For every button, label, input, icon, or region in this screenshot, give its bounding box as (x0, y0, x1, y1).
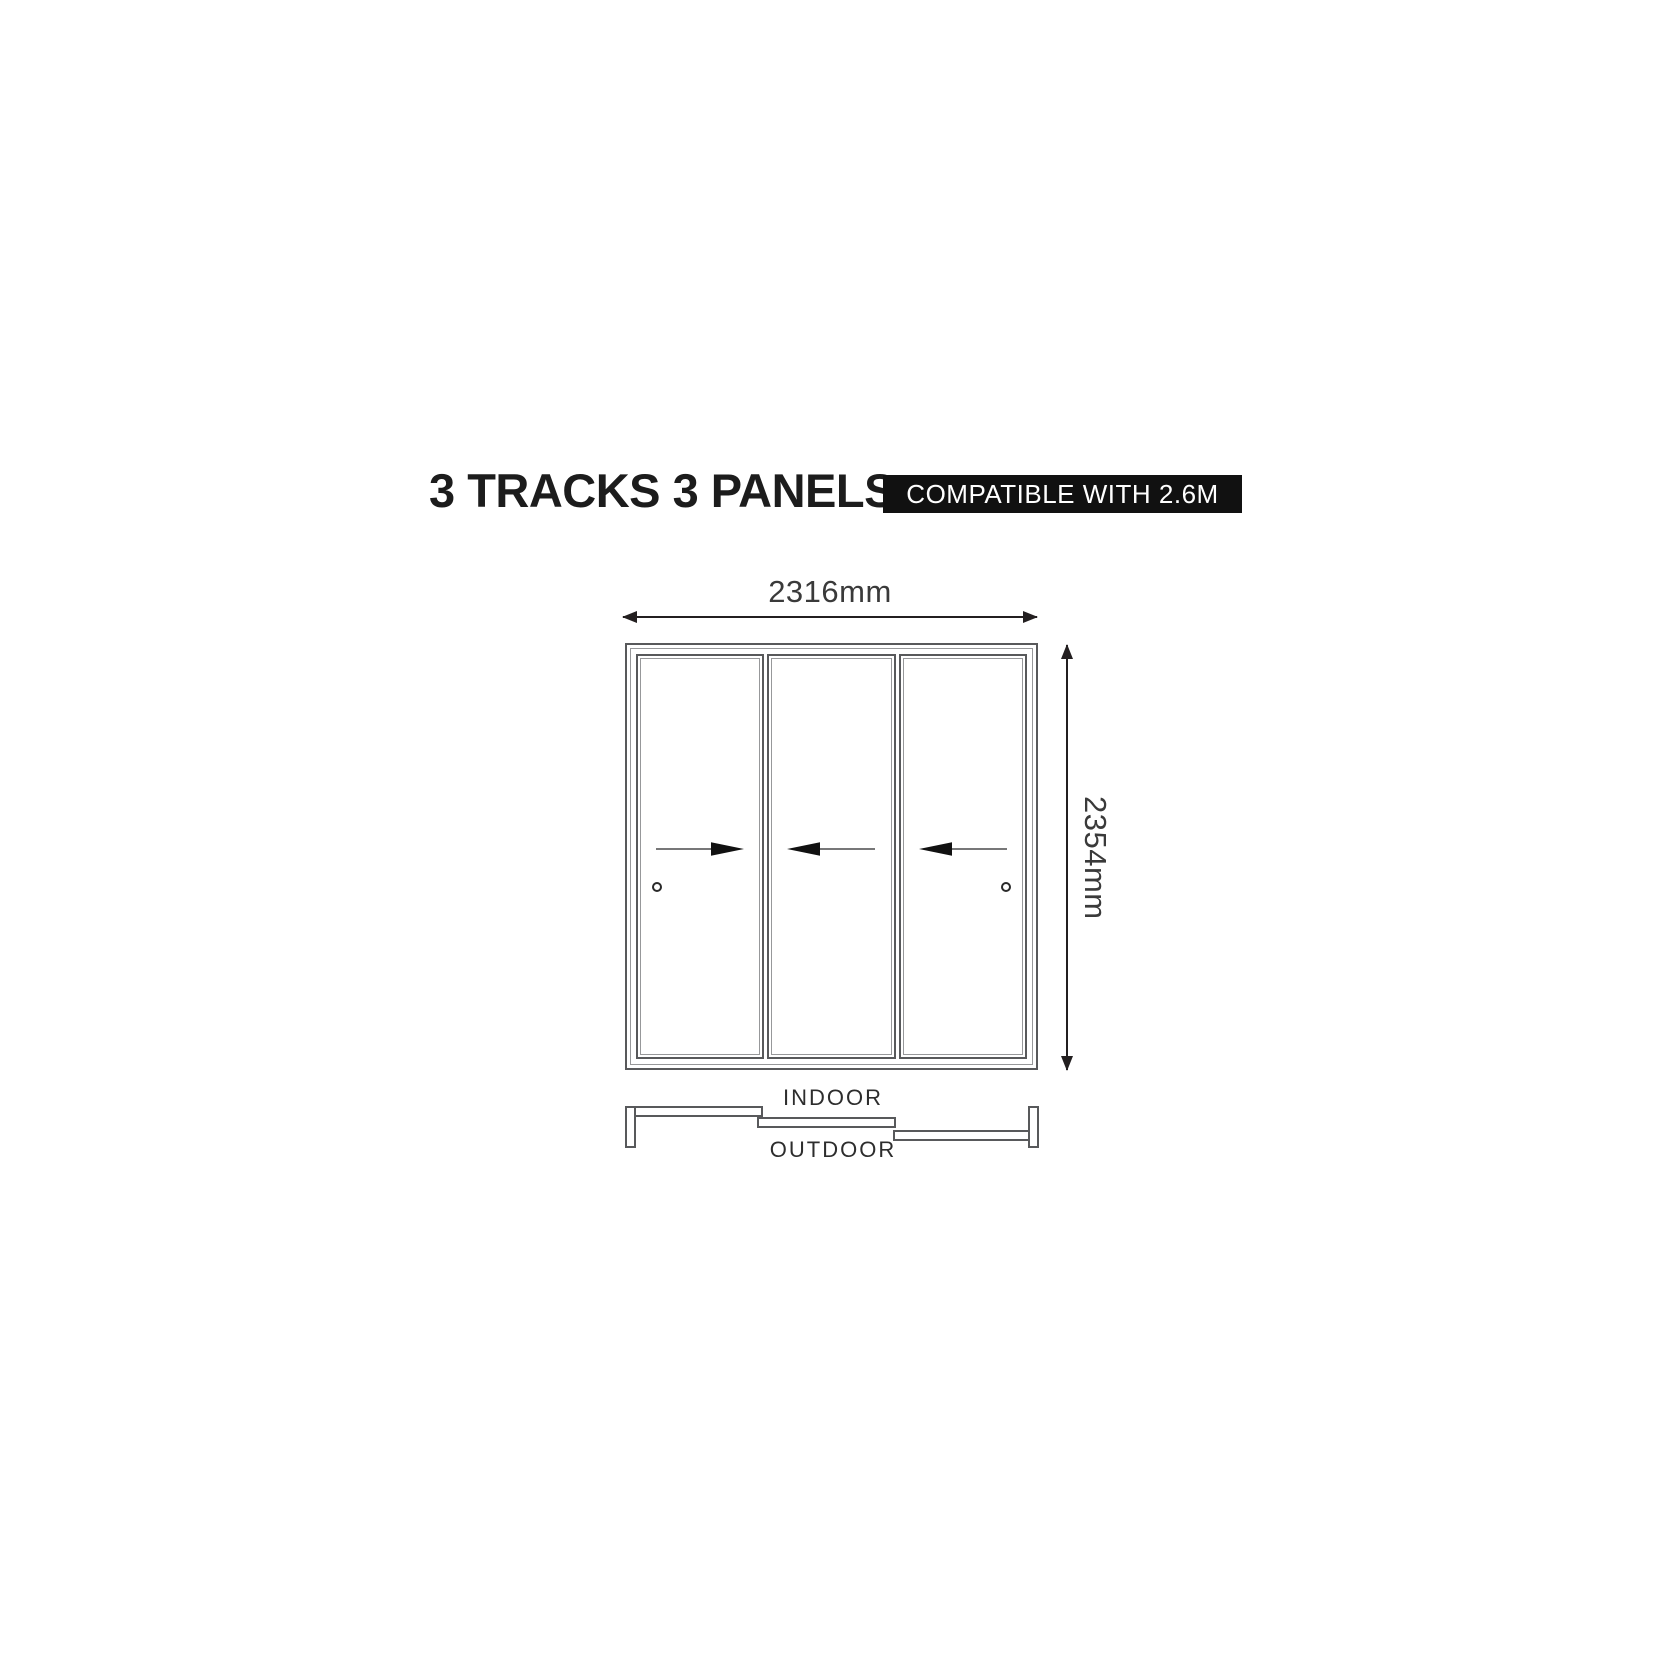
door-panel-3 (899, 654, 1027, 1059)
plan-track2-panel-bar (757, 1117, 896, 1128)
door-panel-2 (767, 654, 895, 1059)
slide-direction-arrow-icon (656, 841, 744, 857)
door-panel-1 (636, 654, 764, 1059)
slide-direction-arrow-icon (787, 841, 875, 857)
height-dimension-arrow-line (1066, 645, 1068, 1070)
product-diagram-page: 3 TRACKS 3 PANELS COMPATIBLE WITH 2.6M 2… (0, 0, 1676, 1676)
plan-right-jamb (1028, 1106, 1039, 1148)
height-dimension-label: 2354mm (1072, 645, 1118, 1070)
door-handle-icon (1001, 882, 1011, 892)
outdoor-label: OUTDOOR (733, 1137, 933, 1163)
plan-track1-panel-bar (634, 1106, 763, 1117)
width-dimension-label: 2316mm (623, 574, 1037, 610)
door-handle-icon (652, 882, 662, 892)
width-dimension-arrow-line (623, 616, 1037, 618)
page-title: 3 TRACKS 3 PANELS (429, 467, 895, 514)
slide-direction-arrow-icon (919, 841, 1007, 857)
door-frame-front-view (625, 643, 1038, 1070)
compatibility-badge: COMPATIBLE WITH 2.6M (883, 475, 1242, 513)
indoor-label: INDOOR (733, 1085, 933, 1111)
panels-row (636, 654, 1027, 1059)
